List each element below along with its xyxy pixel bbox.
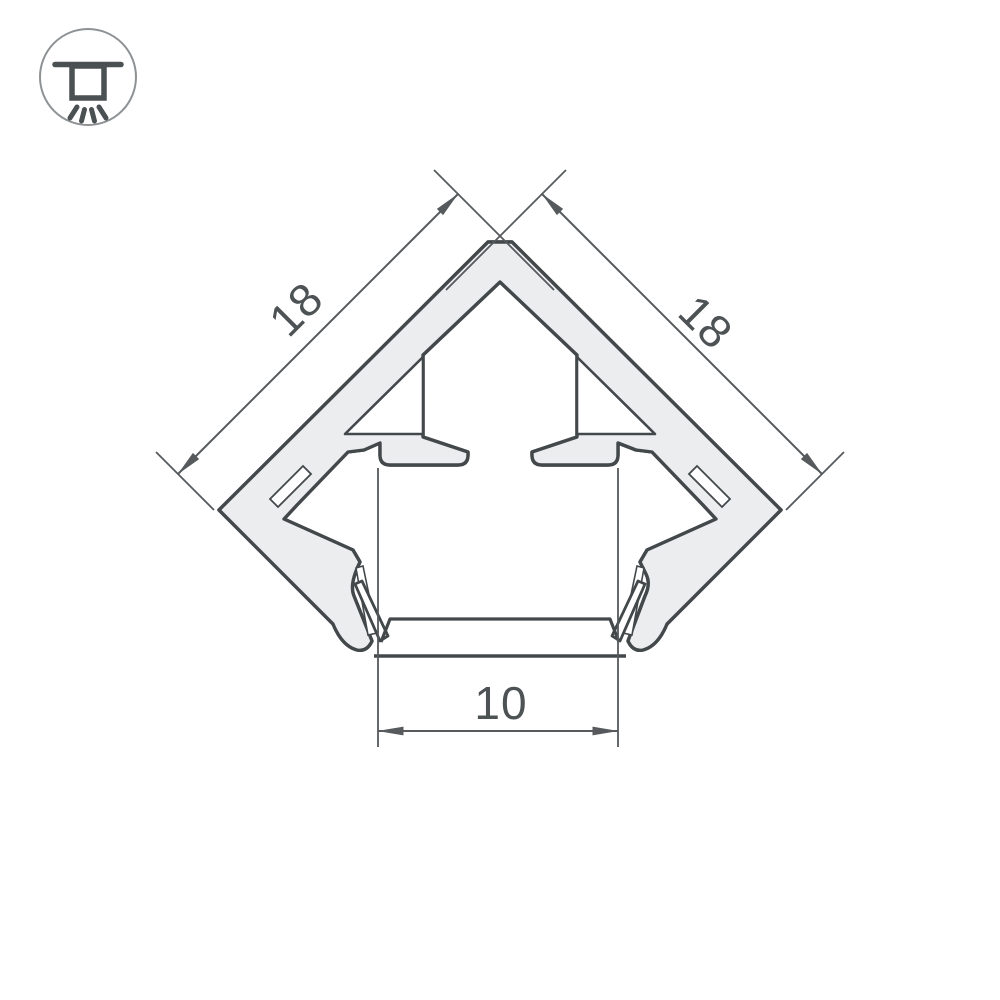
dimension-label-left: 18 bbox=[259, 272, 333, 346]
dimension-label-bottom: 10 bbox=[474, 677, 527, 729]
extension-line-bottom-left bbox=[156, 452, 214, 510]
dimension-label-right: 18 bbox=[669, 285, 743, 359]
recessed-ceiling-light-icon bbox=[36, 26, 140, 130]
profile-drawing: 18 18 10 bbox=[0, 0, 1000, 1000]
extension-line-bottom-right bbox=[786, 452, 844, 510]
icon-circle bbox=[40, 29, 136, 125]
technical-drawing-page: 18 18 10 bbox=[0, 0, 1000, 1000]
screen-tray-top bbox=[381, 619, 619, 642]
